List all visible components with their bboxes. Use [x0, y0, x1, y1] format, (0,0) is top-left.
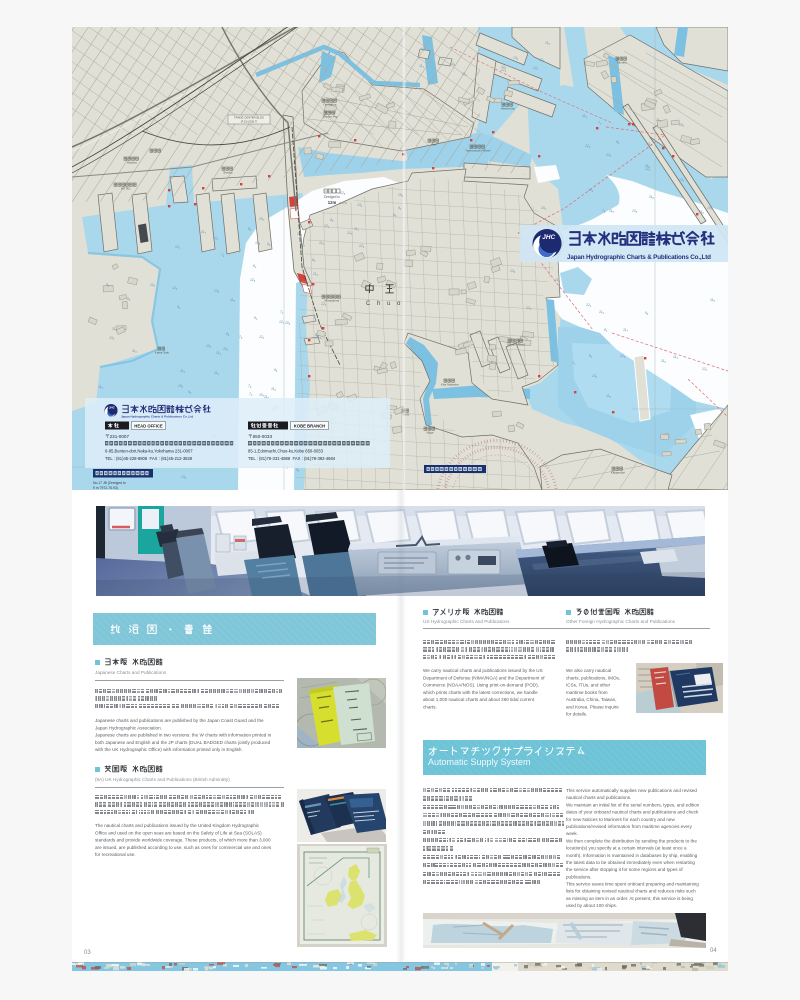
- svg-text:Hatoba: Hatoba: [127, 161, 137, 165]
- svg-text:No.17 JB (Dredged to: No.17 JB (Dredged to: [93, 481, 126, 485]
- svg-text:TRADE CENTER BLDG: TRADE CENTER BLDG: [234, 116, 264, 120]
- svg-text:Kaigandori: Kaigandori: [611, 471, 626, 475]
- svg-text:Noge: Noge: [426, 431, 434, 435]
- svg-text:Shinko-Hig: Shinko-Hig: [323, 115, 338, 119]
- svg-text:Japan Hydrographic Charts & Pu: Japan Hydrographic Charts & Publications…: [121, 415, 193, 419]
- svg-text:C h u o: C h u o: [366, 301, 403, 307]
- svg-text:KOBE BRANCH: KOBE BRANCH: [294, 424, 325, 429]
- svg-text:Oee: Oee: [431, 143, 437, 147]
- svg-text:TEL : (81)45-228-8808 FAX : (: TEL : (81)45-228-8808 FAX : (81)45-212-3…: [105, 456, 193, 461]
- svg-text:Hashimoto: Hashimoto: [501, 107, 516, 111]
- svg-text:Minatojima: Minatojima: [325, 299, 340, 303]
- svg-text:Mizuho: Mizuho: [617, 61, 627, 65]
- svg-text:Shinko: Shinko: [223, 171, 233, 175]
- svg-text:Kawa Saki: Kawa Saki: [155, 351, 170, 355]
- svg-text:〒231-0007: 〒231-0007: [105, 434, 129, 439]
- svg-text:(1972): (1972): [339, 201, 347, 205]
- svg-text:Japan Hydrographic Charts & Pu: Japan Hydrographic Charts & Publications…: [567, 254, 711, 261]
- svg-text:Shinko Wharf: Shinko Wharf: [507, 343, 525, 347]
- svg-text:〒650-0033: 〒650-0033: [248, 434, 272, 439]
- svg-text:Dredged to: Dredged to: [324, 195, 340, 199]
- svg-text:Kita Nakadori: Kita Nakadori: [441, 383, 459, 387]
- svg-text:(P.13) (326) Tf: (P.13) (326) Tf: [241, 119, 258, 123]
- svg-text:TEL : (81)78-331-4888 FAX : (: TEL : (81)78-331-4888 FAX : (81)78-392-4…: [248, 456, 336, 461]
- svg-text:12m: 12m: [328, 200, 337, 205]
- svg-text:85-1,Edomachi,Chuo-ku,Kobe 650: 85-1,Edomachi,Chuo-ku,Kobe 650-0033: [248, 449, 324, 454]
- svg-text:Yamanouchi Wharf: Yamanouchi Wharf: [465, 149, 490, 153]
- svg-text:HEAD OFFICE: HEAD OFFICE: [134, 424, 163, 429]
- svg-text:6-85,Benten-dori,Naka-ku,Yokoh: 6-85,Benten-dori,Naka-ku,Yokohama 231-00…: [105, 449, 193, 454]
- svg-text:JHC: JHC: [542, 234, 555, 241]
- svg-text:9 m 7972-76.93): 9 m 7972-76.93): [93, 486, 118, 490]
- svg-text:JHC: JHC: [109, 406, 116, 410]
- svg-text:Onohama: Onohama: [323, 103, 337, 107]
- svg-text:HOTEL: HOTEL: [121, 187, 131, 191]
